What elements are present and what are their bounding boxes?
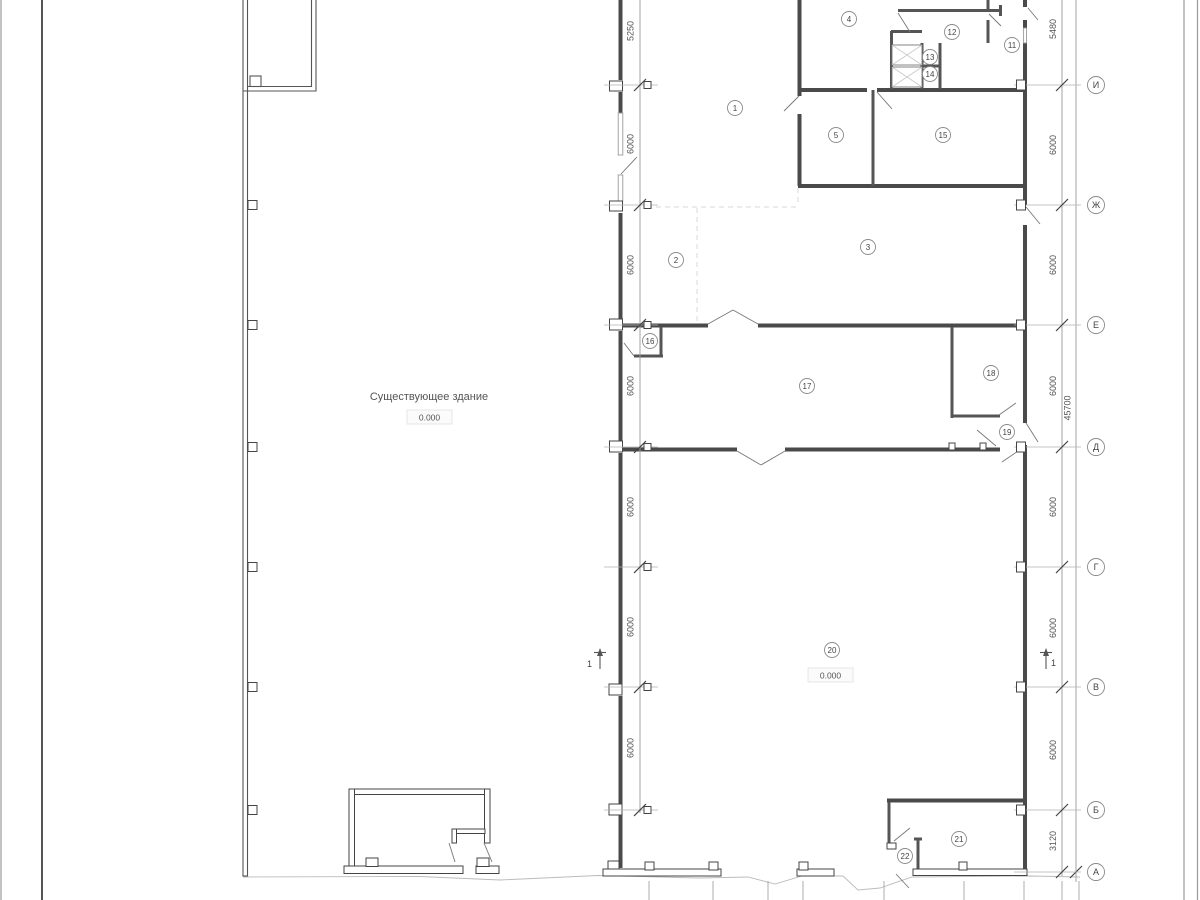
dimension-text: 5250 [626, 21, 636, 41]
vent-shafts [892, 45, 922, 87]
axis-letter: Д [1093, 442, 1099, 452]
room-number: 21 [955, 835, 964, 844]
dimension-text: 6000 [1048, 376, 1058, 396]
column-symbol [1017, 80, 1026, 90]
dimension-text: 6000 [1048, 255, 1058, 275]
room-number-15: 15 [936, 128, 951, 143]
dimension-text: 6000 [626, 617, 636, 637]
axis-letter: И [1093, 80, 1099, 90]
ground-line [243, 876, 1080, 891]
room-number-1: 1 [728, 101, 743, 116]
pilaster [248, 321, 257, 330]
section-label: 1 [1051, 658, 1056, 668]
room-number: 14 [926, 70, 935, 79]
axis-В: В [248, 679, 1105, 696]
dimension-text: 6000 [626, 497, 636, 517]
room-number-14: 14 [923, 67, 938, 82]
room-number: 16 [646, 337, 655, 346]
dimension-text: 3120 [1048, 831, 1058, 851]
room-number-5: 5 [829, 128, 844, 143]
section-label: 1 [587, 659, 592, 669]
column-symbol [644, 444, 651, 451]
dimension-text: 6000 [1048, 740, 1058, 760]
new-building-walls [603, 0, 1040, 888]
annex-inner-wall [248, 0, 312, 87]
room-number-13: 13 [923, 50, 938, 65]
dimension-text: 5480 [1048, 19, 1058, 39]
annex-notch [250, 76, 261, 87]
section-mark-left: 1 [587, 648, 606, 669]
room-number-16: 16 [643, 334, 658, 349]
elevation-value: 0.000 [419, 413, 441, 423]
axis-Ж: Ж [248, 197, 1105, 214]
column-symbol [644, 684, 651, 691]
dimension-text: 45700 [1063, 395, 1073, 420]
room-number-22: 22 [898, 849, 913, 864]
axis-Б: Б [248, 802, 1105, 819]
column-symbol [1017, 320, 1026, 330]
room-number: 18 [987, 369, 996, 378]
room-number-21: 21 [952, 832, 967, 847]
room-number: 3 [866, 243, 871, 252]
dimension-text: 6000 [626, 738, 636, 758]
column-symbol [1017, 805, 1026, 815]
dimension-text: 6000 [626, 255, 636, 275]
axis-letter: В [1093, 682, 1099, 692]
room-number-2: 2 [669, 253, 684, 268]
column-symbol [1017, 562, 1026, 572]
column-symbol [644, 322, 651, 329]
room-number: 11 [1008, 41, 1017, 50]
pilaster [248, 806, 257, 815]
pilaster [248, 563, 257, 572]
room-number-4: 4 [842, 12, 857, 27]
room-number-18: 18 [984, 366, 999, 381]
existing-building-label: Существующее здание [370, 391, 488, 403]
dimension-lines [640, 0, 1082, 882]
drawing-sheet: ИЖЕДГВБА 5250600060006000600060006000548… [0, 0, 1200, 900]
ramp-structure [344, 789, 499, 874]
room-number: 20 [828, 646, 837, 655]
room-number-12: 12 [945, 25, 960, 40]
axis-А: А [1014, 864, 1105, 881]
floor-plan-svg: ИЖЕДГВБА 5250600060006000600060006000548… [0, 0, 1200, 900]
column-symbol [644, 807, 651, 814]
door-swing [621, 157, 637, 174]
dimension-text: 6000 [1048, 497, 1058, 517]
window [1024, 28, 1027, 43]
axis-letter: Б [1093, 805, 1099, 815]
room-number: 15 [939, 131, 948, 140]
grid-lines-below [649, 881, 1079, 900]
room-number-17: 17 [800, 379, 815, 394]
room-number: 19 [1003, 428, 1012, 437]
room-number: 1 [733, 104, 738, 113]
existing-building-walls [243, 0, 499, 876]
annex-outer-wall [243, 0, 316, 91]
column-symbol [1017, 200, 1026, 210]
room-number-20: 20 [825, 643, 840, 658]
column-symbol [1017, 682, 1026, 692]
pilaster [248, 443, 257, 452]
window [618, 175, 623, 201]
room-number: 4 [847, 15, 852, 24]
room-number-11: 11 [1005, 38, 1020, 53]
column-symbol [644, 202, 651, 209]
axis-letter: Е [1093, 320, 1099, 330]
pilaster [248, 683, 257, 692]
room-number: 12 [948, 28, 957, 37]
room-number: 2 [674, 256, 679, 265]
elevation-mark-existing: 0.000 [407, 410, 452, 424]
axis-letter: А [1093, 867, 1099, 877]
dimension-text: 6000 [626, 376, 636, 396]
dimension-text: 6000 [1048, 618, 1058, 638]
axes-layer: ИЖЕДГВБА [248, 77, 1105, 881]
room-numbers-layer: 12345111213141516171819202122 [643, 12, 1020, 864]
room-number: 22 [901, 852, 910, 861]
axis-letter: Ж [1092, 200, 1101, 210]
bottom-platforms [603, 862, 1027, 876]
column-symbol [644, 564, 651, 571]
elevation-mark-new: 0.000 [808, 668, 853, 682]
axis-Д: Д [248, 439, 1105, 456]
axis-letter: Г [1094, 562, 1099, 572]
room-number: 5 [834, 131, 839, 140]
column-symbol [1017, 442, 1026, 452]
room-number: 17 [803, 382, 812, 391]
column-symbol [644, 82, 651, 89]
room-number: 13 [926, 53, 935, 62]
section-mark-right: 1 [1040, 648, 1056, 669]
window [618, 113, 623, 155]
room-number-19: 19 [1000, 425, 1015, 440]
pilaster [248, 201, 257, 210]
axis-Г: Г [248, 559, 1105, 576]
room-number-3: 3 [861, 240, 876, 255]
elevation-value: 0.000 [820, 671, 842, 681]
dimension-text: 6000 [1048, 135, 1058, 155]
dimension-text: 6000 [626, 134, 636, 154]
